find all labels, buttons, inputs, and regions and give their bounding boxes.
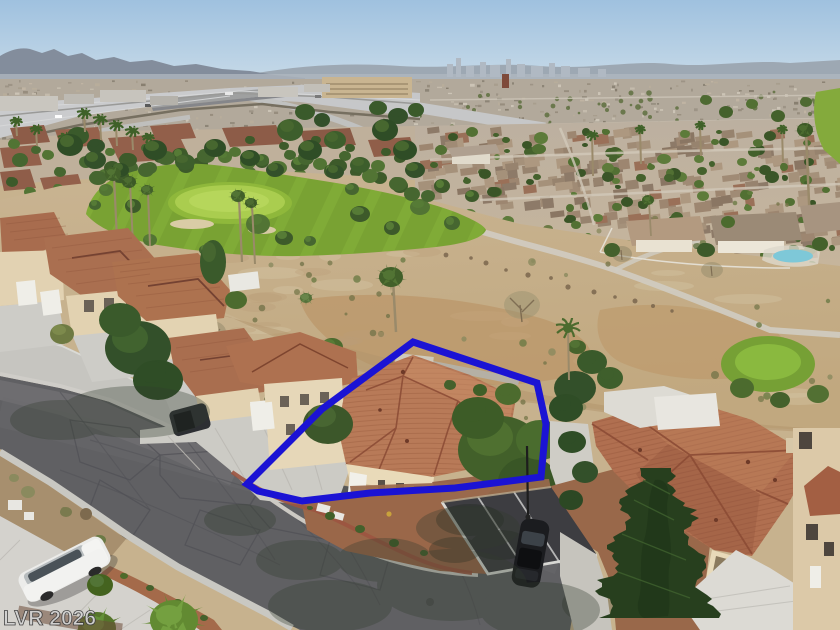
svg-text:LVR 2026: LVR 2026 xyxy=(3,607,96,630)
